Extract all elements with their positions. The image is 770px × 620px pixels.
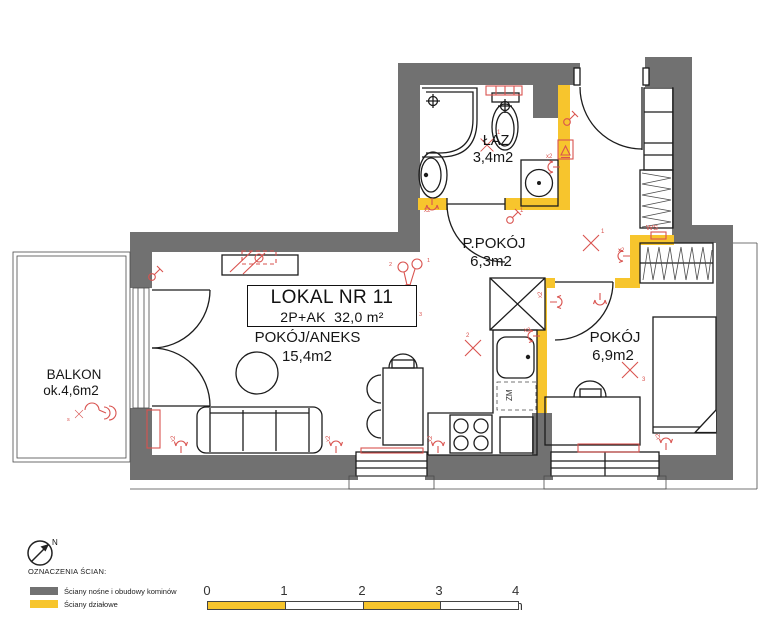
svg-text:x2: x2 [524, 328, 531, 334]
svg-text:x2: x2 [428, 435, 434, 442]
svg-text:ZM: ZM [505, 389, 514, 401]
room-area-laz: 3,4m2 [443, 151, 543, 166]
dining-table-chairs [367, 354, 423, 445]
room-area-balkon: ok.4,6m2 [21, 384, 121, 398]
exterior-lines [130, 243, 757, 489]
scale-bar-segments [207, 601, 519, 610]
svg-text:3: 3 [642, 377, 646, 383]
balcony-door-frame [133, 288, 149, 408]
sofa [197, 407, 322, 453]
hall-wardrobe [640, 170, 673, 228]
svg-text:x2: x2 [618, 248, 625, 254]
scale-tick-0: 0 [203, 583, 210, 598]
scale-tick-2: 2 [358, 583, 365, 598]
dishwasher: ZM [497, 382, 536, 410]
room-label-balkon: BALKON [24, 368, 124, 382]
svg-text:2: 2 [389, 262, 392, 268]
legend-heading: OZNACZENIA ŚCIAN: [28, 567, 106, 576]
legend-label-partition: Ściany działowe [64, 600, 118, 609]
scale-tick-1: 1 [280, 583, 287, 598]
legend-label-load-bearing: Ściany nośne i obudowy kominów [64, 587, 177, 596]
unit-title: LOKAL NR 11 [271, 287, 394, 309]
bedroom-wardrobe [640, 243, 713, 283]
kitchen-sink [497, 337, 534, 378]
scale-tick-3: 3 [435, 583, 442, 598]
bedroom-window [544, 452, 666, 489]
svg-text:x2: x2 [171, 435, 177, 442]
room-label-pokoj: POKÓJ [565, 330, 665, 346]
scale-segment [208, 602, 285, 609]
svg-text:3: 3 [419, 312, 422, 318]
svg-text:1: 1 [427, 258, 430, 264]
legend-swatch-load-bearing [30, 587, 58, 595]
svg-text:x2: x2 [538, 291, 544, 298]
floor-plan-page: ZM WS [0, 0, 770, 620]
scale-segment [285, 602, 363, 609]
room-label-pokoj-aneks: POKÓJ/ANEKS [240, 330, 375, 346]
entrance-door [574, 68, 649, 150]
hall-cabinet [644, 88, 673, 170]
svg-text:x2: x2 [326, 435, 332, 442]
living-window [349, 448, 434, 489]
title-block: LOKAL NR 11 2P+AK 32,0 m² [247, 285, 417, 327]
scale-segment [363, 602, 441, 609]
room-label-p-pokoj: P.POKÓJ [444, 236, 544, 252]
room-label-laz: ŁAZ [446, 134, 546, 149]
svg-text:N: N [52, 538, 58, 547]
fridge [500, 417, 533, 453]
svg-text:2: 2 [466, 333, 470, 339]
svg-text:x2: x2 [424, 208, 431, 214]
balcony-double-door [152, 290, 210, 406]
svg-text:x2: x2 [546, 154, 553, 160]
unit-subtitle: 2P+AK 32,0 m² [280, 309, 383, 325]
desk-chair [545, 381, 640, 445]
svg-text:1: 1 [601, 229, 605, 235]
svg-text:WS: WS [646, 223, 658, 232]
north-compass: N [28, 538, 58, 565]
balcony-light-symbol: s [67, 403, 116, 423]
room-area-pokoj-aneks: 15,4m2 [242, 349, 372, 365]
scale-segment [440, 602, 518, 609]
svg-text:s: s [67, 417, 70, 423]
legend-swatch-partition [30, 600, 58, 608]
stove [450, 415, 492, 453]
room-area-pokoj: 6,9m2 [563, 348, 663, 364]
svg-text:x2: x2 [656, 433, 662, 440]
room-area-p-pokoj: 6,3m2 [441, 254, 541, 270]
balcony-walls [13, 252, 130, 462]
duct-shaft [490, 278, 545, 330]
